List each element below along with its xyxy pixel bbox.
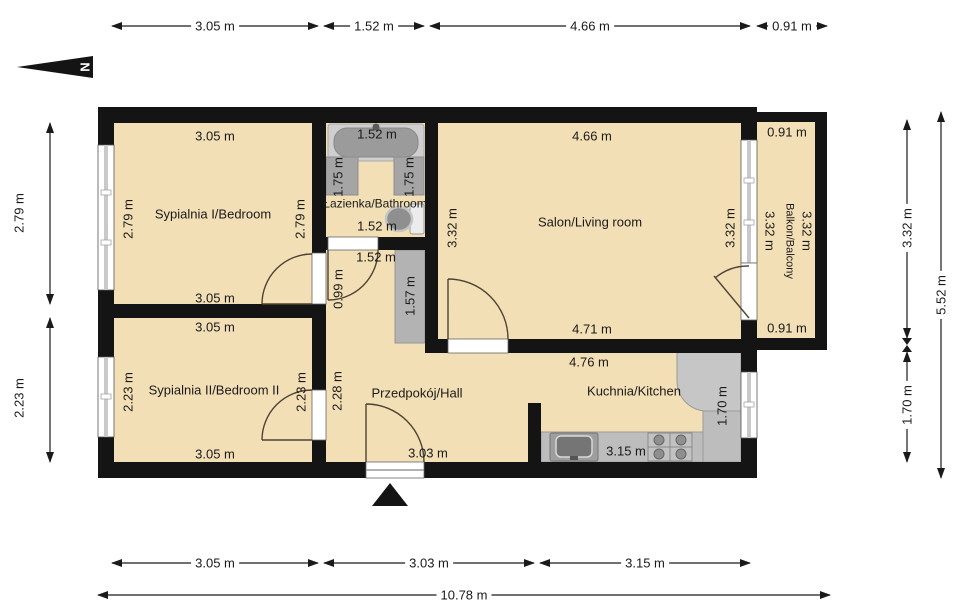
kitchen-dim-counter: 3.15 m <box>606 444 646 459</box>
wall-living-bottom <box>508 339 741 353</box>
stove-burner <box>676 435 686 445</box>
dim-left-1: 2.79 m <box>12 189 27 237</box>
room-label-kitchen: Kuchnia/Kitchen <box>587 384 681 399</box>
hall-dim-bottom: 3.03 m <box>408 446 448 461</box>
room-label-bathroom: Łazienka/Bathroom <box>323 197 426 212</box>
dim-top-3: 4.66 m <box>566 19 614 34</box>
bedroom1-dim-top: 3.05 m <box>195 129 235 144</box>
bedroom2-dim-right: 2.23 m <box>294 372 309 412</box>
north-arrow-icon: N <box>17 56 93 78</box>
bathroom-dim-left: 1.75 m <box>331 157 346 197</box>
room-label-balcony: Balkon/Balcony <box>782 203 797 279</box>
hall-dim-left: 2.28 m <box>330 371 345 411</box>
balcony-dim-right: 3.32 m <box>800 211 815 251</box>
stove-burner <box>654 435 664 445</box>
window-bedroom2 <box>98 357 114 437</box>
sink-basin <box>556 436 592 457</box>
dim-bottom-1: 3.05 m <box>191 556 239 571</box>
living-dim-left: 3.32 m <box>445 208 460 248</box>
entrance-door-threshold <box>366 462 424 478</box>
door-threshold-bedroom1 <box>312 253 326 304</box>
room-label-hall: Przedpokój/Hall <box>371 386 462 401</box>
kitchen-dim-top: 4.76 m <box>569 355 609 370</box>
dim-tick <box>902 338 912 345</box>
wall-bottom <box>424 462 757 478</box>
floor-plan: N 3.05 m 1.52 m 4.66 m 0.91 m 3.05 m 3.0… <box>0 0 960 615</box>
window-bedroom1 <box>98 145 114 290</box>
dim-right-total: 5.52 m <box>934 271 949 319</box>
bathroom-dim-tub: 1.52 m <box>357 127 397 142</box>
hall-dim-top: 1.52 m <box>356 250 396 265</box>
wall-kitchen-partition <box>528 403 541 478</box>
wall-bottom <box>98 462 366 478</box>
living-dim-right: 3.32 m <box>723 208 738 248</box>
door-threshold-bathroom <box>328 237 378 250</box>
dim-top-4: 0.91 m <box>768 19 816 34</box>
bedroom1-dim-right: 2.79 m <box>293 199 308 239</box>
room-label-bedroom1: Sypialnia I/Bedroom <box>155 207 271 222</box>
dim-right-1: 3.32 m <box>900 204 915 252</box>
bedroom1-dim-left: 2.79 m <box>121 199 136 239</box>
balcony-dim-top: 0.91 m <box>767 125 807 140</box>
window-living-room <box>741 140 757 263</box>
room-label-bedroom2: Sypialnia II/Bedroom II <box>149 383 280 398</box>
sink-tap <box>570 456 578 460</box>
bedroom2-dim-bottom: 3.05 m <box>195 447 235 462</box>
hall-dim-upper-left: 0.99 m <box>331 269 346 309</box>
wall-bedroom-divider <box>98 304 326 318</box>
bedroom1-dim-bottom: 3.05 m <box>195 291 235 306</box>
bathroom-dim-bottom: 1.52 m <box>357 219 397 234</box>
kitchen-dim-right: 1.70 m <box>715 386 730 426</box>
north-label: N <box>78 62 93 71</box>
living-dim-top: 4.66 m <box>572 129 612 144</box>
bathroom-dim-right: 1.75 m <box>402 157 417 197</box>
living-dim-bottom: 4.71 m <box>572 322 612 337</box>
wall-balcony-right <box>815 112 827 350</box>
stove-burner <box>676 449 686 459</box>
entrance-arrow-icon <box>372 483 408 506</box>
dim-tick <box>902 345 912 352</box>
dim-top-2: 1.52 m <box>350 19 398 34</box>
balcony-dim-bottom: 0.91 m <box>767 321 807 336</box>
dim-right-2: 1.70 m <box>900 381 915 429</box>
kitchen-corner-cabinet <box>677 351 741 411</box>
bedroom2-dim-left: 2.23 m <box>121 372 136 412</box>
hall-dim-closet: 1.57 m <box>403 276 418 316</box>
wall-bathroom-right <box>425 107 438 353</box>
balcony-dim-left: 3.32 m <box>763 211 778 251</box>
window-kitchen <box>741 372 757 438</box>
room-label-living: Salon/Living room <box>538 215 642 230</box>
dim-bottom-total: 10.78 m <box>437 588 492 603</box>
floor-plan-graphics: N <box>0 0 960 615</box>
dim-top-1: 3.05 m <box>191 19 239 34</box>
door-threshold-living-room <box>448 339 508 353</box>
dim-bottom-3: 3.15 m <box>621 556 669 571</box>
bedroom2-dim-top: 3.05 m <box>195 320 235 335</box>
dim-left-2: 2.23 m <box>12 374 27 422</box>
door-threshold-bedroom2 <box>312 390 326 440</box>
stove-burner <box>654 449 664 459</box>
dim-bottom-2: 3.03 m <box>405 556 453 571</box>
